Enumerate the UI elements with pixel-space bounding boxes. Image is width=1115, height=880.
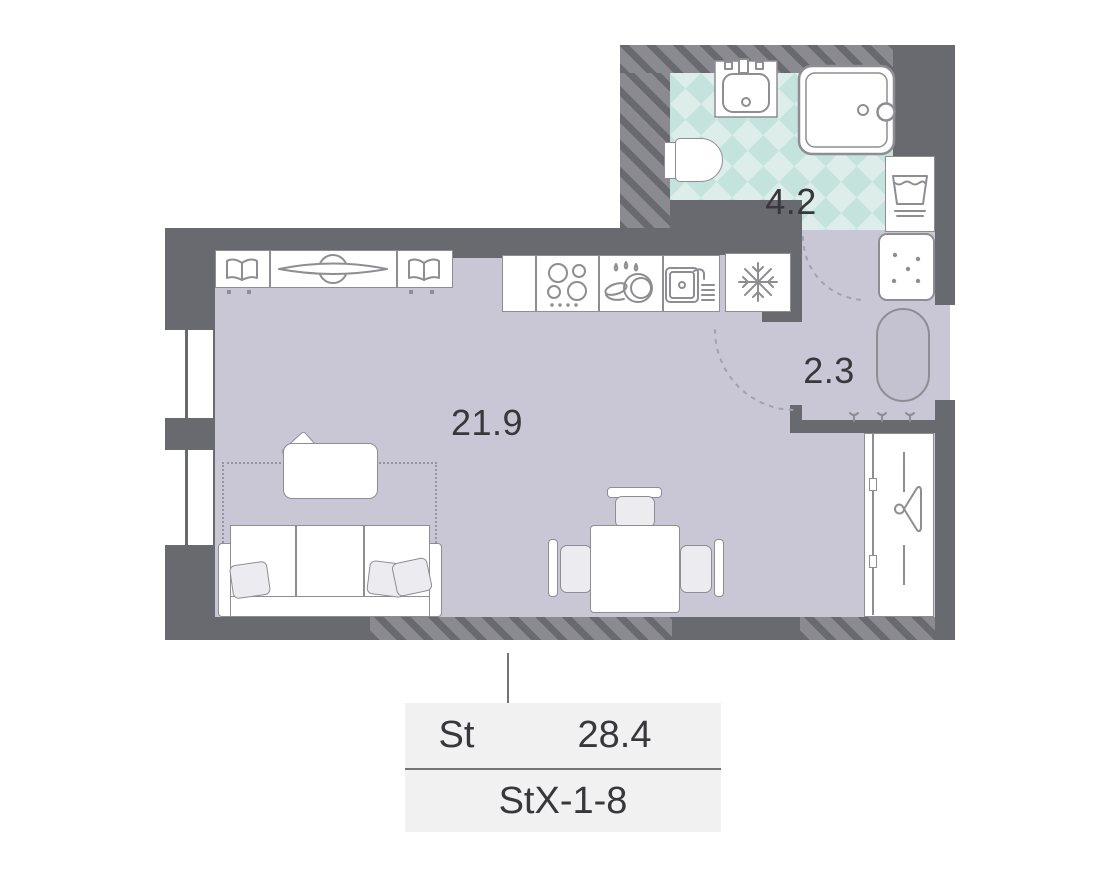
floorplan-canvas: 21.9 2.3 4.2 St 28.4 StX-1-8 <box>0 0 1115 880</box>
bathroom-area-label: 4.2 <box>731 181 851 223</box>
unit-type-label: St <box>405 714 508 757</box>
layout-code-label: StX-1-8 <box>499 780 628 823</box>
hallway-area-label: 2.3 <box>769 350 889 392</box>
legend-row-1: St 28.4 <box>405 703 721 768</box>
total-area-value: 28.4 <box>508 714 721 757</box>
bathroom-door-arc <box>803 237 866 300</box>
living-room-area-label: 21.9 <box>417 402 557 444</box>
legend-row-2: StX-1-8 <box>405 770 721 832</box>
